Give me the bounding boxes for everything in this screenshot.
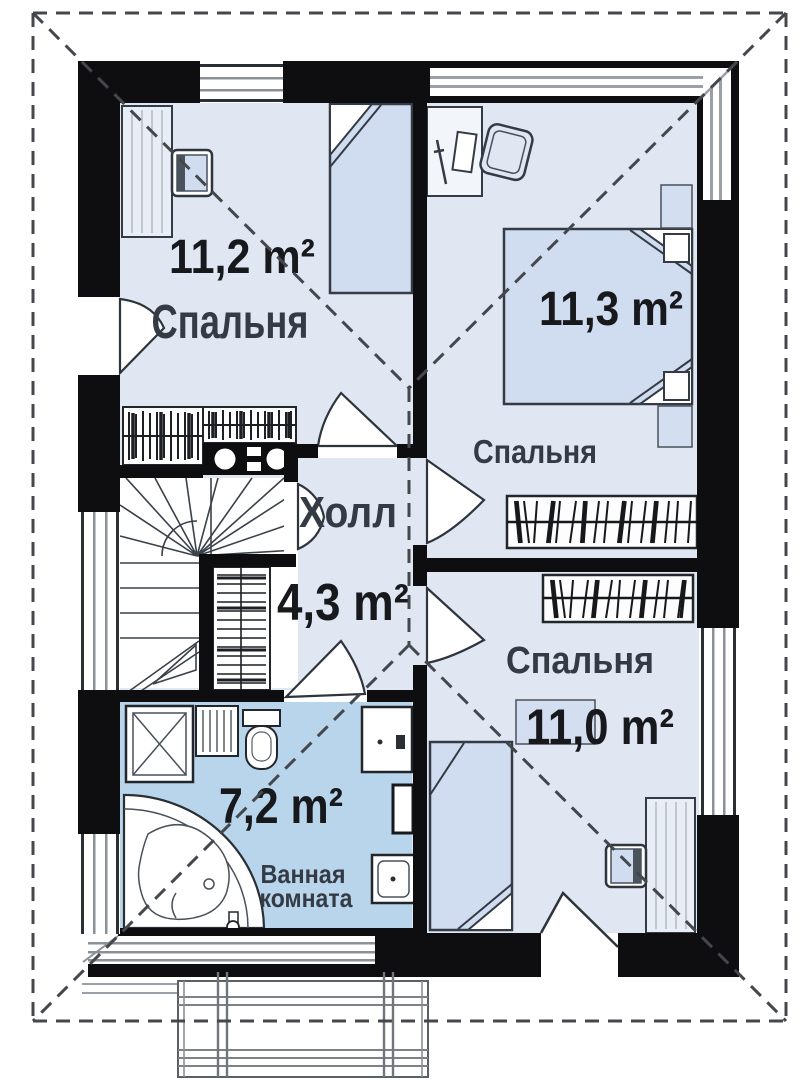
svg-text:7,2 m²: 7,2 m²: [219, 778, 343, 834]
svg-text:11,3 m²: 11,3 m²: [539, 283, 683, 336]
svg-text:Холл: Холл: [299, 488, 397, 537]
svg-text:4,3 m²: 4,3 m²: [277, 574, 409, 632]
svg-text:комната: комната: [260, 883, 353, 913]
svg-text:Спальня: Спальня: [473, 433, 597, 470]
svg-text:11,2 m²: 11,2 m²: [169, 231, 315, 284]
svg-text:11,0 m²: 11,0 m²: [526, 699, 674, 755]
svg-text:Спальня: Спальня: [506, 640, 654, 682]
svg-text:Спальня: Спальня: [152, 296, 309, 349]
